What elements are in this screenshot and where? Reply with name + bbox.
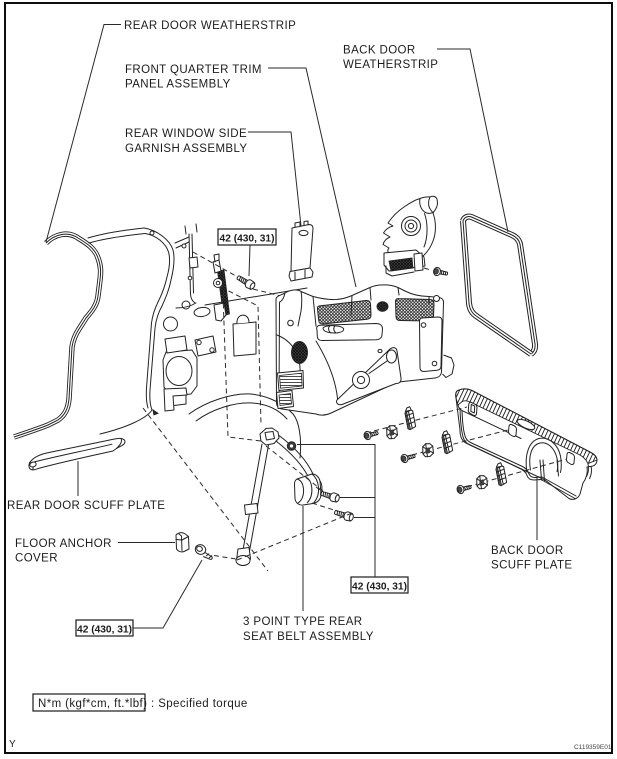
- svg-text:C119359E01: C119359E01: [574, 744, 612, 751]
- svg-text:WEATHERSTRIP: WEATHERSTRIP: [343, 59, 438, 71]
- svg-text:N*m (kgf*cm, ft.*lbf): N*m (kgf*cm, ft.*lbf): [38, 698, 147, 710]
- svg-text:SCUFF PLATE: SCUFF PLATE: [491, 560, 573, 572]
- svg-text:BACK DOOR: BACK DOOR: [491, 545, 564, 557]
- svg-text:REAR DOOR SCUFF PLATE: REAR DOOR SCUFF PLATE: [7, 500, 165, 512]
- svg-text:FRONT QUARTER TRIM: FRONT QUARTER TRIM: [125, 64, 262, 76]
- svg-text:42 (430, 31): 42 (430, 31): [220, 234, 275, 245]
- svg-text:BACK DOOR: BACK DOOR: [343, 45, 416, 57]
- svg-text:PANEL ASSEMBLY: PANEL ASSEMBLY: [125, 79, 231, 91]
- svg-text:GARNISH ASSEMBLY: GARNISH ASSEMBLY: [125, 143, 248, 155]
- svg-text:42 (430, 31): 42 (430, 31): [352, 582, 407, 593]
- svg-text:REAR WINDOW SIDE: REAR WINDOW SIDE: [125, 128, 247, 140]
- svg-text:FLOOR ANCHOR: FLOOR ANCHOR: [15, 538, 112, 550]
- svg-text:Y: Y: [9, 739, 16, 750]
- svg-text:42 (430, 31): 42 (430, 31): [77, 625, 132, 636]
- svg-text:COVER: COVER: [15, 553, 58, 565]
- svg-text:REAR DOOR WEATHERSTRIP: REAR DOOR WEATHERSTRIP: [124, 20, 296, 32]
- svg-text:3 POINT TYPE REAR: 3 POINT TYPE REAR: [243, 616, 363, 628]
- svg-text:: Specified torque: : Specified torque: [151, 698, 248, 710]
- svg-text:SEAT BELT ASSEMBLY: SEAT BELT ASSEMBLY: [243, 631, 374, 643]
